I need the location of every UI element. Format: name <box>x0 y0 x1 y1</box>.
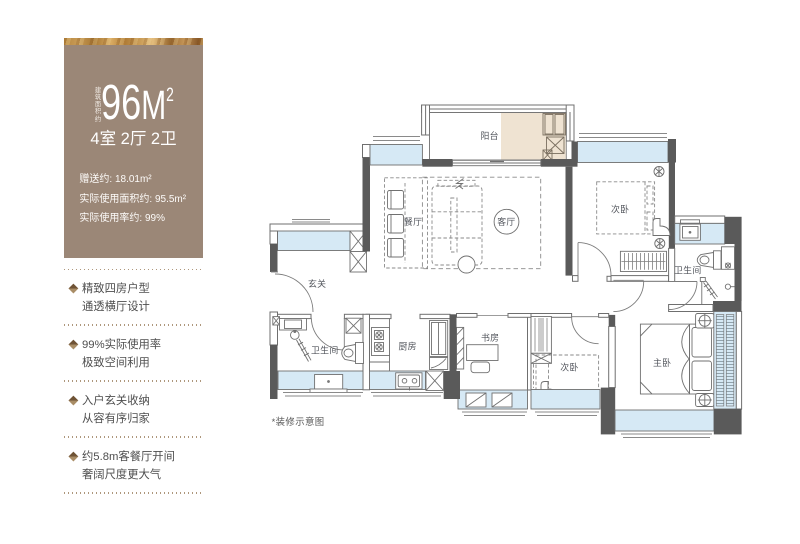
svg-text:厨房: 厨房 <box>399 340 417 351</box>
svg-text:玄关: 玄关 <box>308 278 326 289</box>
svg-text:卫生间: 卫生间 <box>311 345 339 356</box>
svg-text:卫生间: 卫生间 <box>674 265 702 276</box>
svg-text:次卧: 次卧 <box>611 204 629 215</box>
svg-text:餐厅: 餐厅 <box>404 216 422 227</box>
svg-text:主卧: 主卧 <box>653 357 671 368</box>
svg-text:书房: 书房 <box>481 332 499 343</box>
svg-text:阳台: 阳台 <box>481 130 499 141</box>
svg-text:次卧: 次卧 <box>560 362 578 373</box>
svg-text:客厅: 客厅 <box>497 216 515 227</box>
svg-text:*装修示意图: *装修示意图 <box>272 416 325 427</box>
